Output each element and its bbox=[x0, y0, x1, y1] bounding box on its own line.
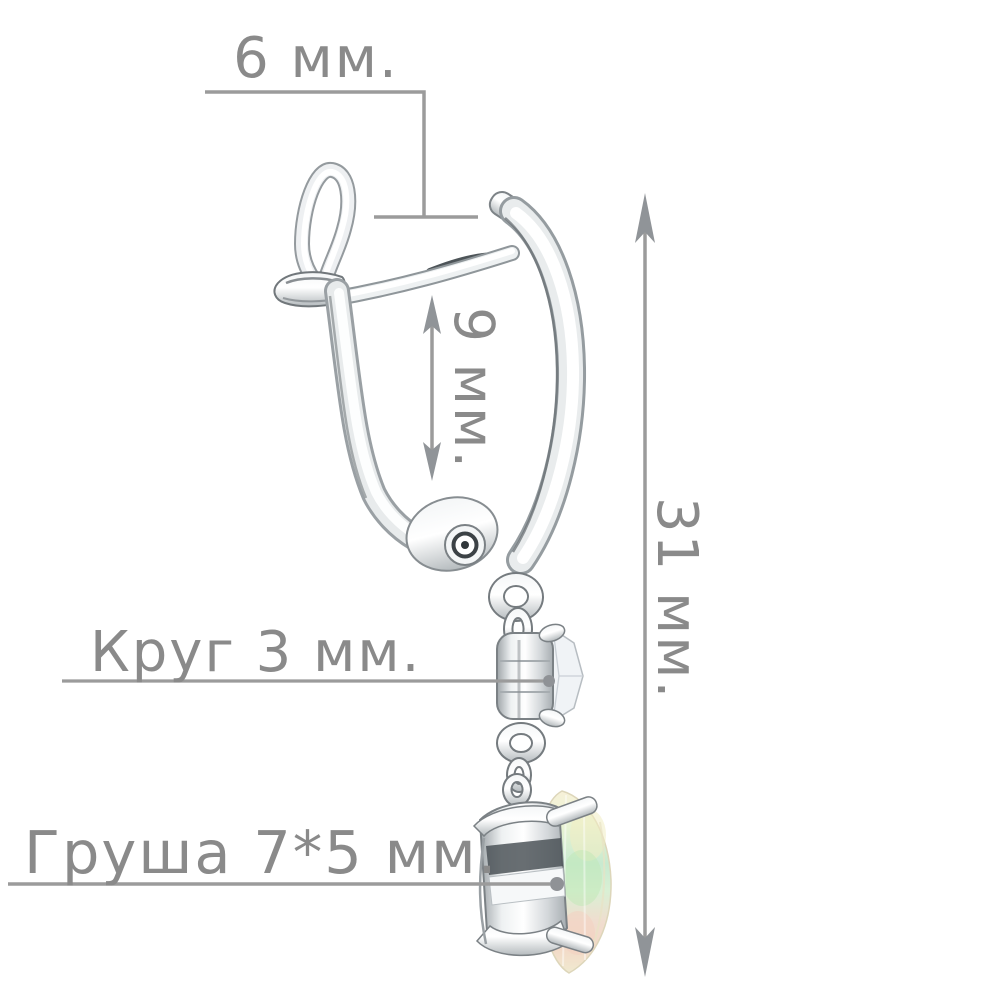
dimension-label-hook-width: 6 мм. bbox=[200, 31, 432, 87]
earring-hinge bbox=[399, 488, 506, 580]
dimension-label-total-height: 31 мм. bbox=[648, 497, 704, 700]
leader-dot bbox=[543, 675, 555, 687]
dim-hoop-height-arrow bbox=[423, 295, 441, 481]
dimension-label-pear-stone: Груша 7*5 мм. bbox=[24, 823, 498, 882]
product-dimension-diagram: 6 мм. 9 мм. 31 мм. Круг 3 мм. Груша 7*5 … bbox=[0, 0, 1000, 1000]
dimension-label-round-stone: Круг 3 мм. bbox=[90, 625, 421, 681]
earring-ring-bottom bbox=[497, 723, 545, 763]
earring-top-bar bbox=[332, 251, 512, 299]
round-stone-assembly bbox=[497, 621, 583, 729]
leader-dot bbox=[550, 877, 564, 891]
dimension-label-hoop-height: 9 мм. bbox=[446, 307, 501, 470]
